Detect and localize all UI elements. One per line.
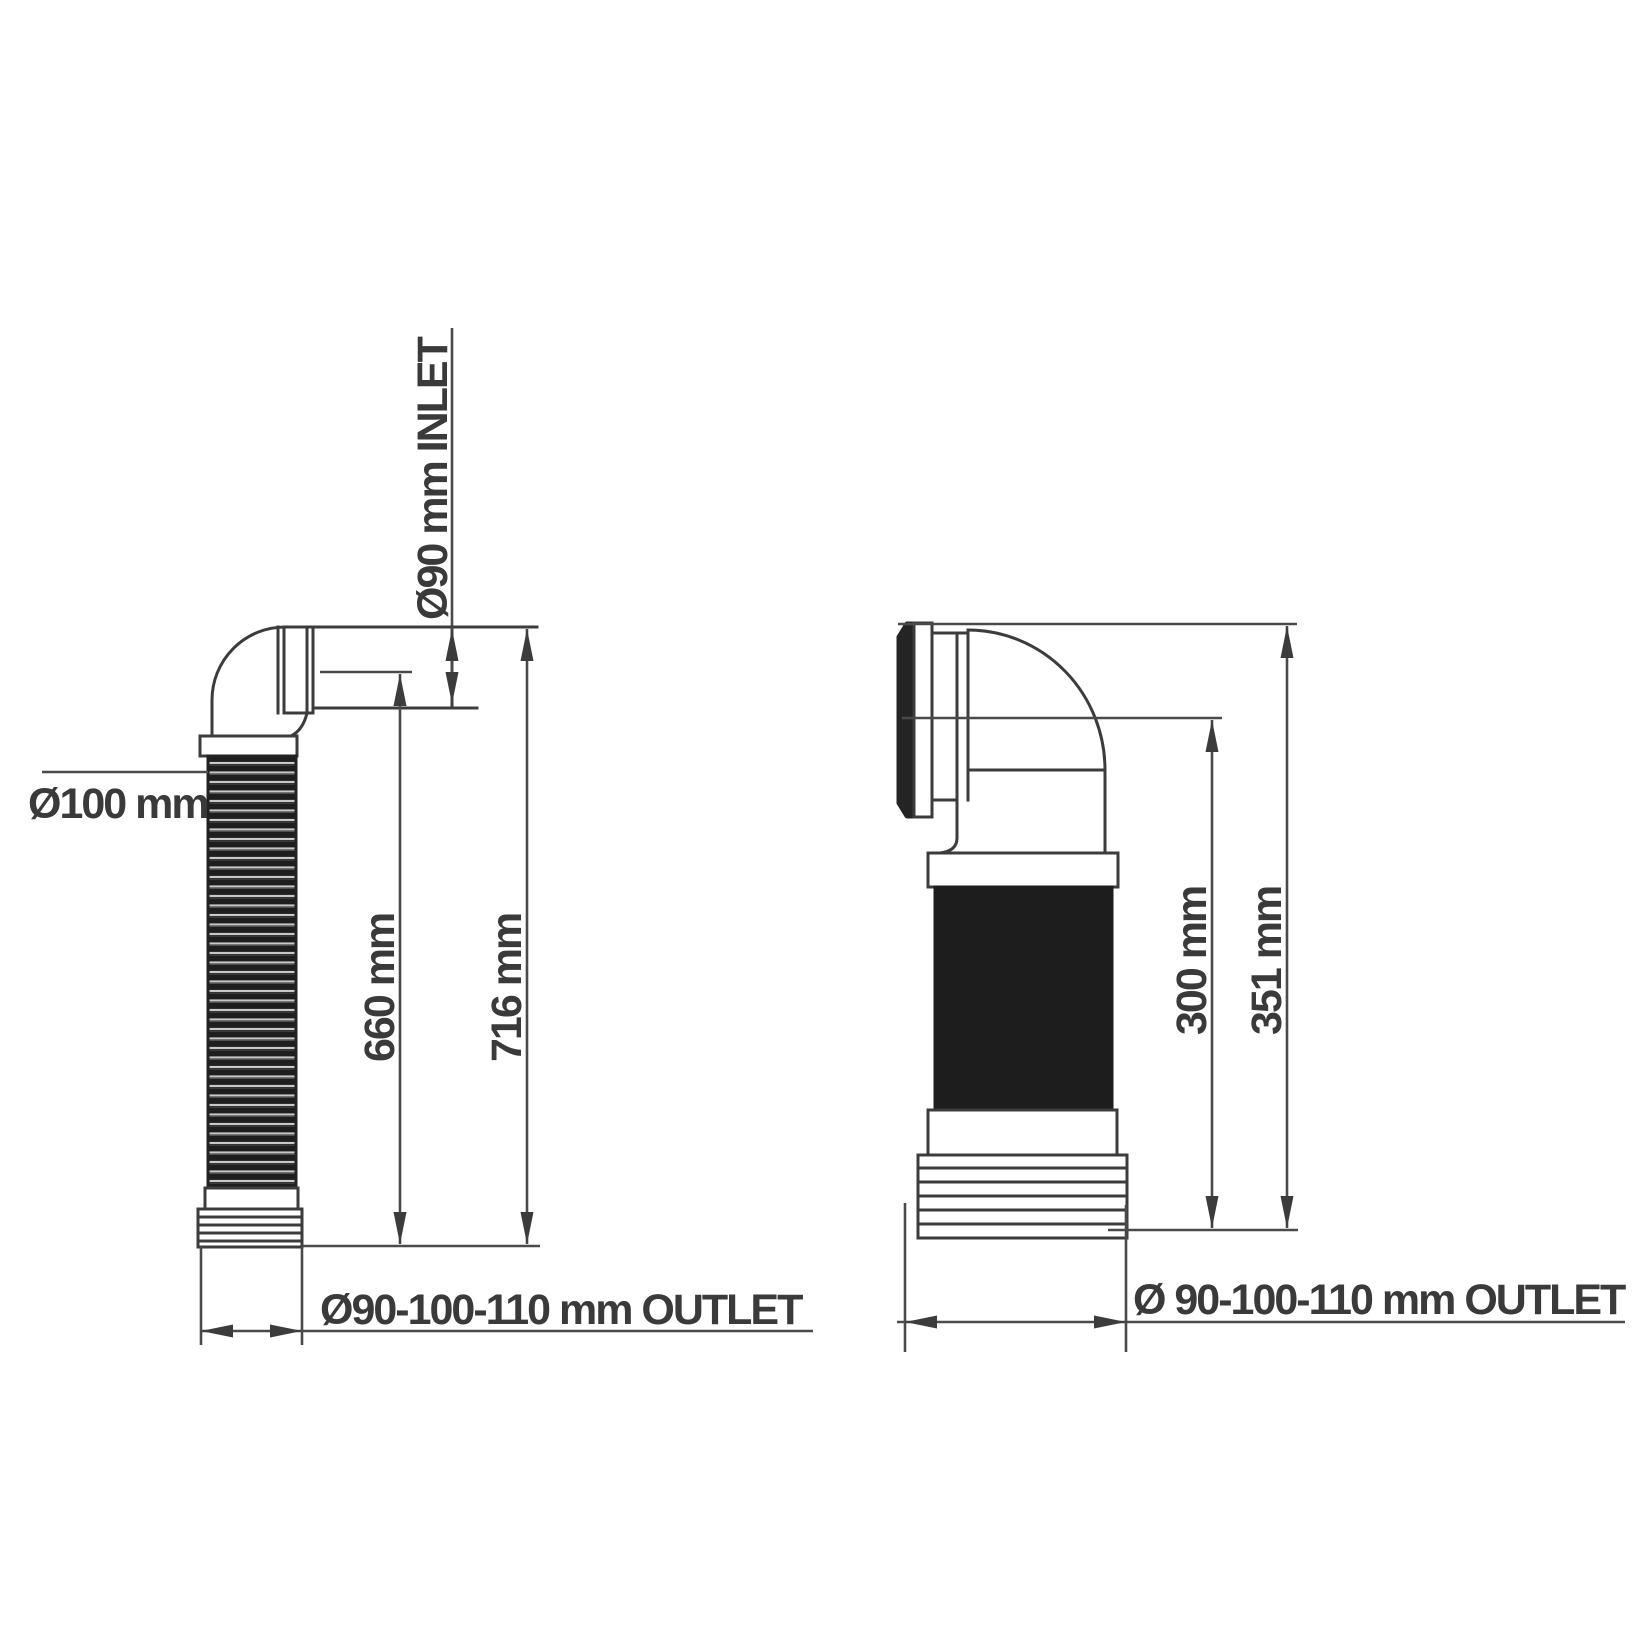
pan-connector-diagram: Ø90 mm INLET Ø100 mm 660 mm 716 mm Ø90-1… [0,0,1640,1640]
elbow-left [212,627,537,736]
left-figure: Ø90 mm INLET Ø100 mm 660 mm 716 mm Ø90-1… [28,328,813,1345]
inlet-diameter-label: Ø90 mm INLET [409,336,457,620]
hose-diameter-label: Ø100 mm [28,780,208,828]
outlet-label-left: Ø90-100-110 mm OUTLET [320,1286,803,1334]
outlet-label-right: Ø 90-100-110 mm OUTLET [1133,1276,1626,1324]
dimension-label-660: 660 mm [356,914,404,1062]
dimension-label-716: 716 mm [483,914,531,1062]
outlet-ribs-left [198,1209,302,1247]
hose-bottom-collar [205,1188,298,1209]
inlet-diameter-dimension [446,627,459,704]
right-figure: 300 mm 351 mm Ø 90-100-110 mm OUTLET [897,623,1626,1352]
sleeve-bottom-collar [928,1110,1117,1155]
dimension-label-351: 351 mm [1243,887,1291,1035]
sleeve-top-collar [928,853,1118,887]
flex-hose [208,756,296,1188]
flange-right [899,623,932,817]
dimension-label-300: 300 mm [1168,887,1216,1035]
hose-top-collar [200,736,297,756]
elbow-right [932,630,1105,853]
technical-drawing-page: Ø90 mm INLET Ø100 mm 660 mm 716 mm Ø90-1… [0,0,1640,1640]
outlet-ribs-right [918,1155,1127,1238]
rubber-sleeve [935,887,1112,1110]
